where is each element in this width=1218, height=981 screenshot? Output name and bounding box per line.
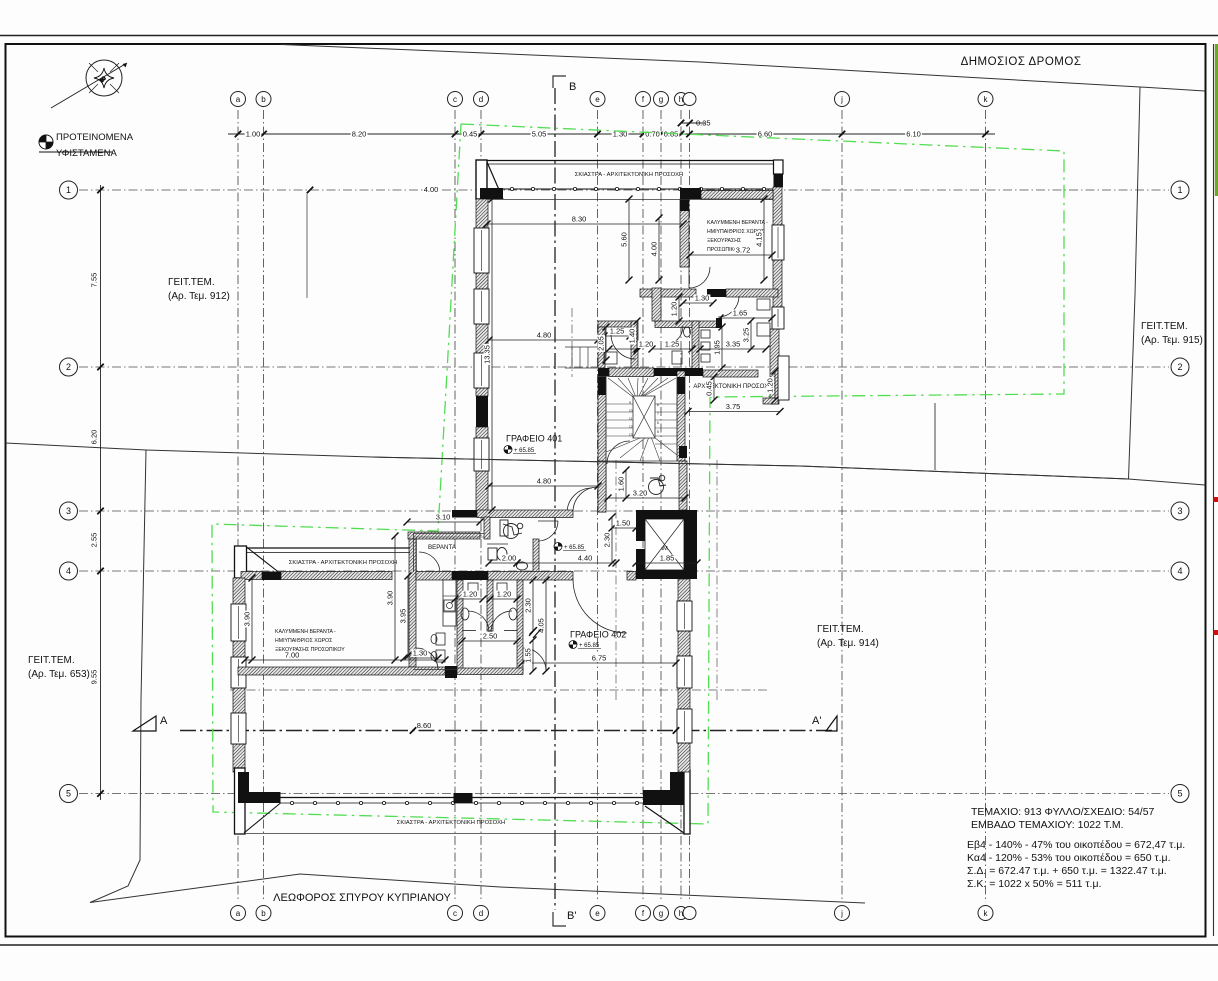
svg-text:5.05: 5.05	[532, 130, 547, 139]
svg-text:8: 8	[657, 403, 659, 407]
svg-text:4.05: 4.05	[537, 618, 546, 633]
svg-text:10: 10	[629, 409, 633, 413]
svg-text:7.55: 7.55	[90, 273, 99, 288]
svg-text:ɪM: ɪM	[661, 546, 668, 552]
svg-text:2.55: 2.55	[90, 533, 99, 548]
svg-text:+ 65.85: + 65.85	[579, 643, 600, 649]
svg-text:1.30: 1.30	[413, 649, 428, 658]
svg-text:ΓΡΑΦΕΙΟ 402: ΓΡΑΦΕΙΟ 402	[570, 630, 626, 640]
svg-text:3: 3	[1177, 506, 1182, 516]
svg-text:B: B	[569, 81, 576, 93]
svg-text:3.95: 3.95	[399, 609, 408, 624]
svg-text:c: c	[453, 909, 457, 918]
svg-text:d: d	[479, 909, 483, 918]
svg-text:(Αρ. Τεμ. 915): (Αρ. Τεμ. 915)	[1141, 335, 1203, 346]
svg-text:1.20: 1.20	[766, 378, 775, 393]
svg-text:ΤΕΜΑΧΙΟ: 913 ΦΥΛΛΟ/ΣΧΕΔΙΟ: 5: ΤΕΜΑΧΙΟ: 913 ΦΥΛΛΟ/ΣΧΕΔΙΟ: 54/57	[971, 806, 1155, 818]
svg-text:8.30: 8.30	[572, 215, 587, 224]
svg-text:4: 4	[66, 566, 71, 576]
svg-text:13.35: 13.35	[483, 345, 492, 364]
svg-text:8.20: 8.20	[352, 130, 367, 139]
svg-text:0.35: 0.35	[696, 119, 711, 128]
svg-text:7.00: 7.00	[285, 651, 300, 660]
svg-text:1.65: 1.65	[733, 309, 748, 318]
svg-text:1.95: 1.95	[713, 340, 722, 355]
svg-text:Σ.Κ. = 1022 x 50% = 511 τ.μ: Σ.Κ. = 1022 x 50% = 511 τ.μ.	[967, 878, 1101, 890]
svg-text:ΔΗΜΟΣΙΟΣ ΔΡΟΜΟΣ: ΔΗΜΟΣΙΟΣ ΔΡΟΜΟΣ	[961, 56, 1082, 68]
svg-text:j: j	[840, 95, 843, 104]
svg-text:Κα4 - 120% - 53% του οικο: Κα4 - 120% - 53% του οικοπέδου = 650 τ.μ…	[967, 852, 1171, 864]
svg-text:3: 3	[66, 506, 71, 516]
svg-text:+ 65.85: + 65.85	[564, 545, 585, 551]
svg-text:4.80: 4.80	[537, 477, 552, 486]
svg-text:ΛΕΩΦΟΡΟΣ ΣΠΥΡΟΥ ΚΥΠΡΙΑΝΟΥ: ΛΕΩΦΟΡΟΣ ΣΠΥΡΟΥ ΚΥΠΡΙΑΝΟΥ	[273, 892, 451, 904]
svg-text:ΚΑΛΥΜΜΕΝΗ ΒΕΡΑΝΤΑ -: ΚΑΛΥΜΜΕΝΗ ΒΕΡΑΝΤΑ -	[707, 220, 768, 226]
svg-text:ΓΕΙΤ.ΤΕΜ.: ΓΕΙΤ.ΤΕΜ.	[1141, 321, 1188, 332]
svg-text:1.20: 1.20	[639, 340, 654, 349]
svg-text:6.10: 6.10	[906, 130, 921, 139]
svg-text:ΓΡΑΦΕΙΟ 401: ΓΡΑΦΕΙΟ 401	[506, 434, 562, 444]
svg-text:3.10: 3.10	[436, 513, 451, 522]
svg-text:1.20: 1.20	[670, 302, 679, 317]
svg-text:9: 9	[629, 401, 631, 405]
svg-text:6.75: 6.75	[592, 654, 607, 663]
svg-text:Εβ4 - 140% - 47% του οικο: Εβ4 - 140% - 47% του οικοπέδου = 672,47 …	[967, 839, 1185, 851]
svg-text:0.45: 0.45	[705, 381, 714, 396]
svg-text:ΓΕΙΤ.ΤΕΜ.: ΓΕΙΤ.ΤΕΜ.	[817, 624, 864, 635]
svg-text:5.60: 5.60	[620, 232, 629, 247]
svg-text:1.60: 1.60	[617, 477, 626, 492]
svg-text:3.90: 3.90	[386, 591, 395, 606]
svg-text:d: d	[479, 95, 483, 104]
svg-text:a: a	[236, 95, 241, 104]
svg-text:3.72: 3.72	[736, 246, 751, 255]
svg-text:e: e	[595, 95, 600, 104]
svg-text:2.05: 2.05	[597, 336, 606, 351]
svg-text:0.45: 0.45	[463, 130, 478, 139]
svg-text:2.30: 2.30	[524, 598, 533, 613]
svg-text:ΣΚΙΑΣΤΡΑ - ΑΡΧΙΤΕΚΤΟΝΙΚΗ ΠΡΟΣΟ: ΣΚΙΑΣΤΡΑ - ΑΡΧΙΤΕΚΤΟΝΙΚΗ ΠΡΟΣΟΧΗ	[397, 820, 505, 826]
svg-text:3.35: 3.35	[726, 340, 741, 349]
svg-text:ΓΕΙΤ.ΤΕΜ.: ΓΕΙΤ.ΤΕΜ.	[28, 655, 75, 666]
svg-text:1: 1	[1177, 185, 1182, 195]
svg-text:1.40: 1.40	[628, 329, 637, 344]
svg-text:8.60: 8.60	[417, 721, 432, 730]
svg-text:1: 1	[66, 185, 71, 195]
svg-text:6: 6	[657, 421, 659, 425]
svg-text:3.90: 3.90	[243, 612, 252, 627]
svg-text:13: 13	[629, 433, 633, 437]
svg-text:ΚΑΛΥΜΜΕΝΗ ΒΕΡΑΝΤΑ -: ΚΑΛΥΜΜΕΝΗ ΒΕΡΑΝΤΑ -	[275, 629, 336, 635]
svg-text:6.20: 6.20	[90, 430, 99, 445]
svg-text:(Αρ. Τεμ. 912): (Αρ. Τεμ. 912)	[168, 291, 230, 302]
svg-text:4.00: 4.00	[424, 185, 439, 194]
svg-text:4.15: 4.15	[755, 232, 764, 247]
svg-text:1.20: 1.20	[463, 590, 478, 599]
svg-text:7: 7	[657, 412, 659, 416]
svg-text:(Αρ. Τεμ. 914): (Αρ. Τεμ. 914)	[817, 638, 879, 649]
svg-text:11: 11	[629, 417, 633, 421]
svg-text:1.20: 1.20	[497, 590, 512, 599]
svg-text:4.40: 4.40	[578, 554, 593, 563]
svg-text:B': B'	[567, 910, 576, 922]
svg-text:a: a	[236, 909, 241, 918]
svg-text:5: 5	[66, 789, 71, 799]
svg-text:ΥΦΙΣΤΑΜΕΝΑ: ΥΦΙΣΤΑΜΕΝΑ	[56, 148, 117, 159]
svg-text:5: 5	[657, 430, 659, 434]
svg-text:Σ.Δ. = 672.47 τ.μ. + 650 τ.μ: Σ.Δ. = 672.47 τ.μ. + 650 τ.μ. = 1322.47 …	[967, 865, 1167, 877]
svg-text:4.80: 4.80	[537, 331, 552, 340]
svg-text:1.00: 1.00	[246, 130, 261, 139]
svg-text:b: b	[261, 95, 266, 104]
svg-text:c: c	[453, 95, 457, 104]
svg-text:ΠΡΟΤΕΙΝΟΜΕΝΑ: ΠΡΟΤΕΙΝΟΜΕΝΑ	[56, 132, 134, 143]
svg-text:j: j	[840, 909, 843, 918]
svg-text:1.85: 1.85	[660, 554, 675, 563]
svg-text:+ 65.85: + 65.85	[514, 448, 535, 454]
svg-text:9.55: 9.55	[90, 670, 99, 685]
svg-text:4.00: 4.00	[650, 242, 659, 257]
svg-text:1.55: 1.55	[524, 648, 533, 663]
svg-text:2.50: 2.50	[483, 632, 498, 641]
svg-text:1.25: 1.25	[665, 340, 680, 349]
svg-text:3.75: 3.75	[726, 402, 741, 411]
svg-text:ΕΜΒΑΔΟ ΤΕΜΑΧΙΟΥ: 1022 Τ.Μ.: ΕΜΒΑΔΟ ΤΕΜΑΧΙΟΥ: 1022 Τ.Μ.	[971, 819, 1124, 831]
svg-text:ΣΚΙΑΣΤΡΑ - ΑΡΧΙΤΕΚΤΟΝΙΚΗ ΠΡΟΣΟ: ΣΚΙΑΣΤΡΑ - ΑΡΧΙΤΕΚΤΟΝΙΚΗ ΠΡΟΣΟΧΗ	[289, 560, 397, 566]
svg-text:ΗΜΙΥΠΑΙΘΡΙΟΣ ΧΩΡΟΣ: ΗΜΙΥΠΑΙΘΡΙΟΣ ΧΩΡΟΣ	[275, 638, 332, 644]
svg-text:12: 12	[629, 425, 633, 429]
svg-text:1.30: 1.30	[695, 294, 710, 303]
svg-text:(Αρ. Τεμ. 653): (Αρ. Τεμ. 653)	[28, 669, 90, 680]
svg-text:ΣΚΙΑΣΤΡΑ - ΑΡΧΙΤΕΚΤΟΝΙΚΗ ΠΡΟΣΟ: ΣΚΙΑΣΤΡΑ - ΑΡΧΙΤΕΚΤΟΝΙΚΗ ΠΡΟΣΟΧΗ	[575, 172, 683, 178]
svg-text:1.50: 1.50	[616, 519, 631, 528]
svg-text:ΞΕΚΟΥΡΑΣΗΣ: ΞΕΚΟΥΡΑΣΗΣ	[707, 238, 741, 244]
svg-text:5: 5	[1177, 789, 1182, 799]
svg-text:3.20: 3.20	[633, 489, 648, 498]
svg-text:b: b	[261, 909, 266, 918]
svg-text:g: g	[659, 909, 663, 918]
svg-text:g: g	[659, 95, 663, 104]
svg-text:ΒΕΡΑΝΤΑ: ΒΕΡΑΝΤΑ	[428, 544, 457, 551]
svg-text:A: A	[160, 715, 168, 727]
svg-text:A': A'	[812, 715, 821, 727]
svg-text:2: 2	[1177, 362, 1182, 372]
svg-text:3.25: 3.25	[742, 328, 751, 343]
svg-text:e: e	[595, 909, 600, 918]
svg-text:2.30: 2.30	[603, 533, 612, 548]
svg-text:2: 2	[66, 362, 71, 372]
svg-text:1.25: 1.25	[610, 327, 625, 336]
svg-text:ΓΕΙΤ.ΤΕΜ.: ΓΕΙΤ.ΤΕΜ.	[168, 277, 215, 288]
svg-text:2.00: 2.00	[502, 554, 517, 563]
svg-text:0.70: 0.70	[645, 130, 660, 139]
svg-text:4: 4	[1177, 566, 1182, 576]
